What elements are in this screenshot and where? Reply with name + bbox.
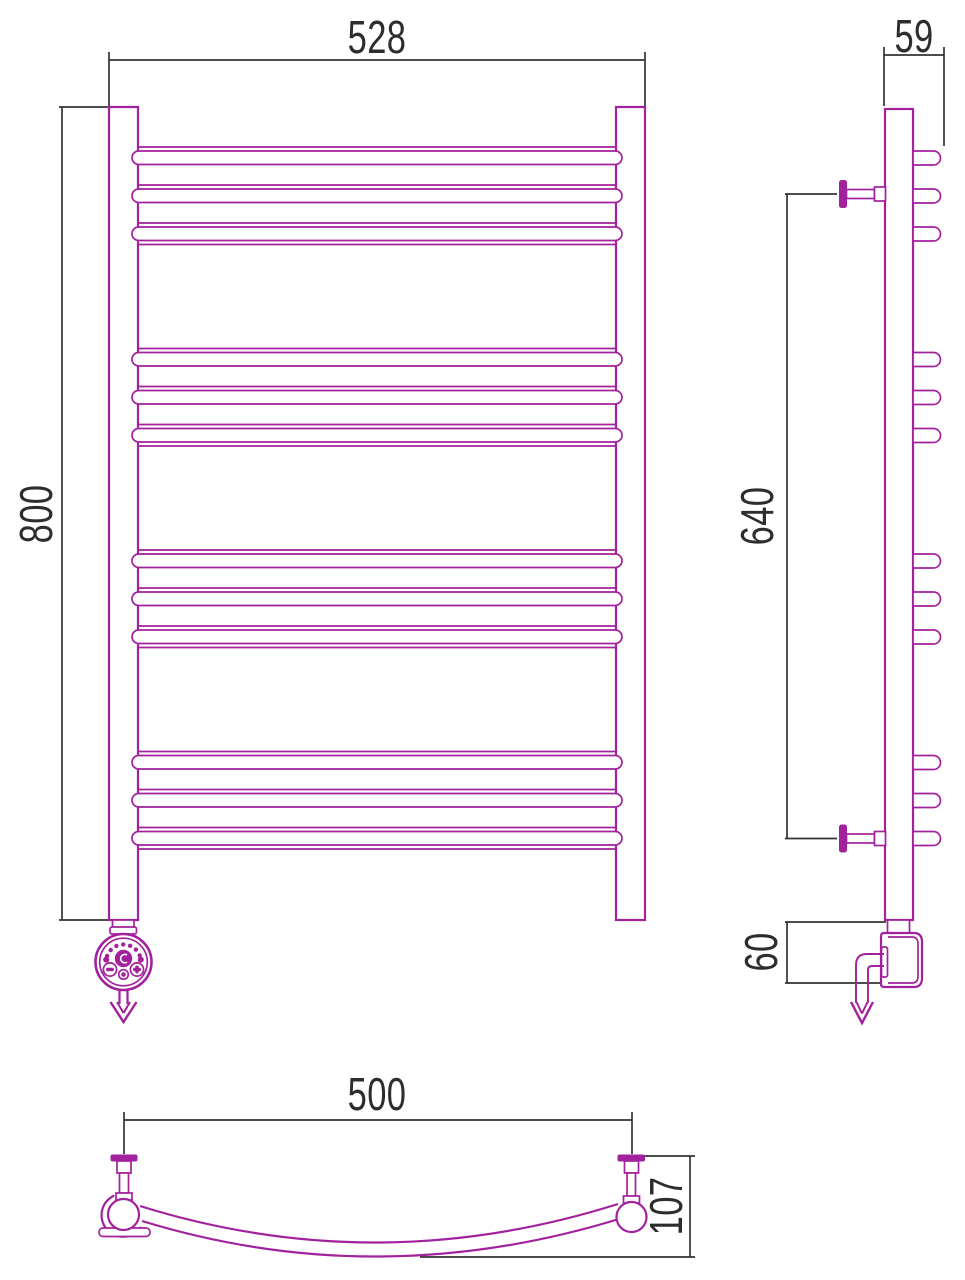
drawing-canvas: 528 800 59 640 60 500 107 xyxy=(0,0,965,1280)
dim-label-side-bottom-offset: 60 xyxy=(735,932,787,971)
heating-element-front xyxy=(96,920,152,990)
dimension-plan-depth: 107 xyxy=(420,1156,695,1257)
side-wall-bracket-top xyxy=(840,181,886,208)
front-rung-group-3 xyxy=(132,550,622,648)
heating-element-side xyxy=(881,920,922,987)
front-view xyxy=(96,107,646,1022)
dim-label-side-mount-span: 640 xyxy=(731,487,783,546)
dimension-plan-mount-width: 500 xyxy=(124,1068,632,1154)
front-rung-group-2 xyxy=(132,349,622,447)
dim-label-plan-depth: 107 xyxy=(640,1177,692,1236)
element-power-knob xyxy=(115,950,131,966)
dimension-side-bottom-offset: 60 xyxy=(735,922,898,983)
dim-label-front-height: 800 xyxy=(10,485,62,544)
side-stub-group-2 xyxy=(913,353,941,443)
side-stub-group-3 xyxy=(913,554,941,644)
power-cable-arrow-side xyxy=(851,954,884,1023)
side-view xyxy=(840,109,941,1023)
dimension-front-height: 800 xyxy=(10,107,109,920)
side-wall-bracket-bottom xyxy=(840,825,886,852)
dim-label-front-width: 528 xyxy=(348,11,407,63)
side-stub-group-1 xyxy=(913,151,941,241)
plan-view xyxy=(99,1155,647,1257)
dimension-front-width: 528 xyxy=(109,11,645,106)
side-post xyxy=(885,109,913,920)
front-rung-group-4 xyxy=(132,752,622,850)
front-rung-group-1 xyxy=(132,147,622,245)
plan-curved-rung xyxy=(140,1204,619,1257)
dim-label-plan-mount-width: 500 xyxy=(348,1068,407,1120)
side-stub-group-4 xyxy=(913,756,941,846)
towel-rail-technical-drawing: 528 800 59 640 60 500 107 xyxy=(0,0,965,1280)
plan-wall-bracket-left xyxy=(99,1155,150,1237)
dim-label-side-depth: 59 xyxy=(894,10,933,62)
power-cable-arrow-front xyxy=(111,990,137,1022)
dimension-side-mount-span: 640 xyxy=(731,194,837,839)
